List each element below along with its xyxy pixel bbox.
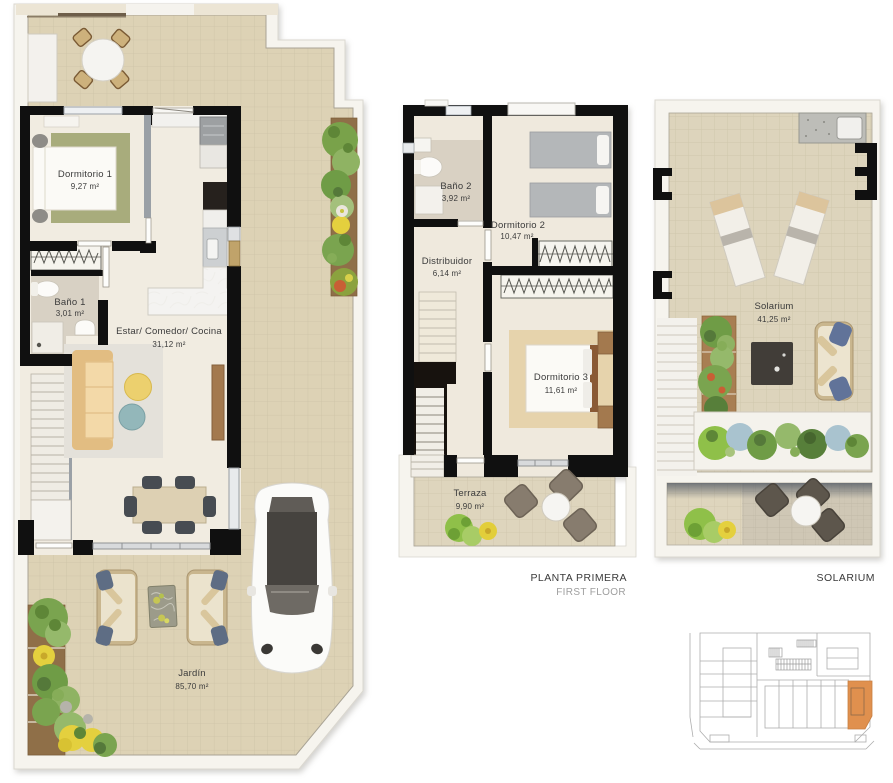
svg-text:Terraza: Terraza [453,488,487,499]
svg-text:Distribuidor: Distribuidor [422,256,472,267]
svg-text:9,27 m²: 9,27 m² [71,182,100,191]
svg-text:Estar/ Comedor/ Cocina: Estar/ Comedor/ Cocina [116,326,222,337]
svg-text:Baño 2: Baño 2 [440,181,471,192]
svg-text:Dormitorio 3: Dormitorio 3 [534,372,588,383]
svg-text:Solarium: Solarium [754,301,793,312]
svg-text:11,61 m²: 11,61 m² [545,386,578,395]
svg-text:41,25 m²: 41,25 m² [757,315,790,324]
svg-text:Dormitorio 1: Dormitorio 1 [58,169,112,180]
svg-text:Jardín: Jardín [178,668,206,679]
svg-text:FIRST FLOOR: FIRST FLOOR [556,587,626,598]
svg-text:3,92 m²: 3,92 m² [442,194,471,203]
svg-text:SOLARIUM: SOLARIUM [817,572,875,584]
svg-text:Baño 1: Baño 1 [54,297,85,308]
svg-text:6,14 m²: 6,14 m² [433,269,462,278]
svg-text:31,12 m²: 31,12 m² [152,340,185,349]
svg-text:PLANTA PRIMERA: PLANTA PRIMERA [530,572,627,584]
svg-text:85,70 m²: 85,70 m² [175,682,208,691]
svg-text:10,47 m²: 10,47 m² [500,232,533,241]
svg-text:9,90 m²: 9,90 m² [456,502,485,511]
svg-text:Dormitorio 2: Dormitorio 2 [491,220,545,231]
svg-text:3,01 m²: 3,01 m² [56,309,85,318]
